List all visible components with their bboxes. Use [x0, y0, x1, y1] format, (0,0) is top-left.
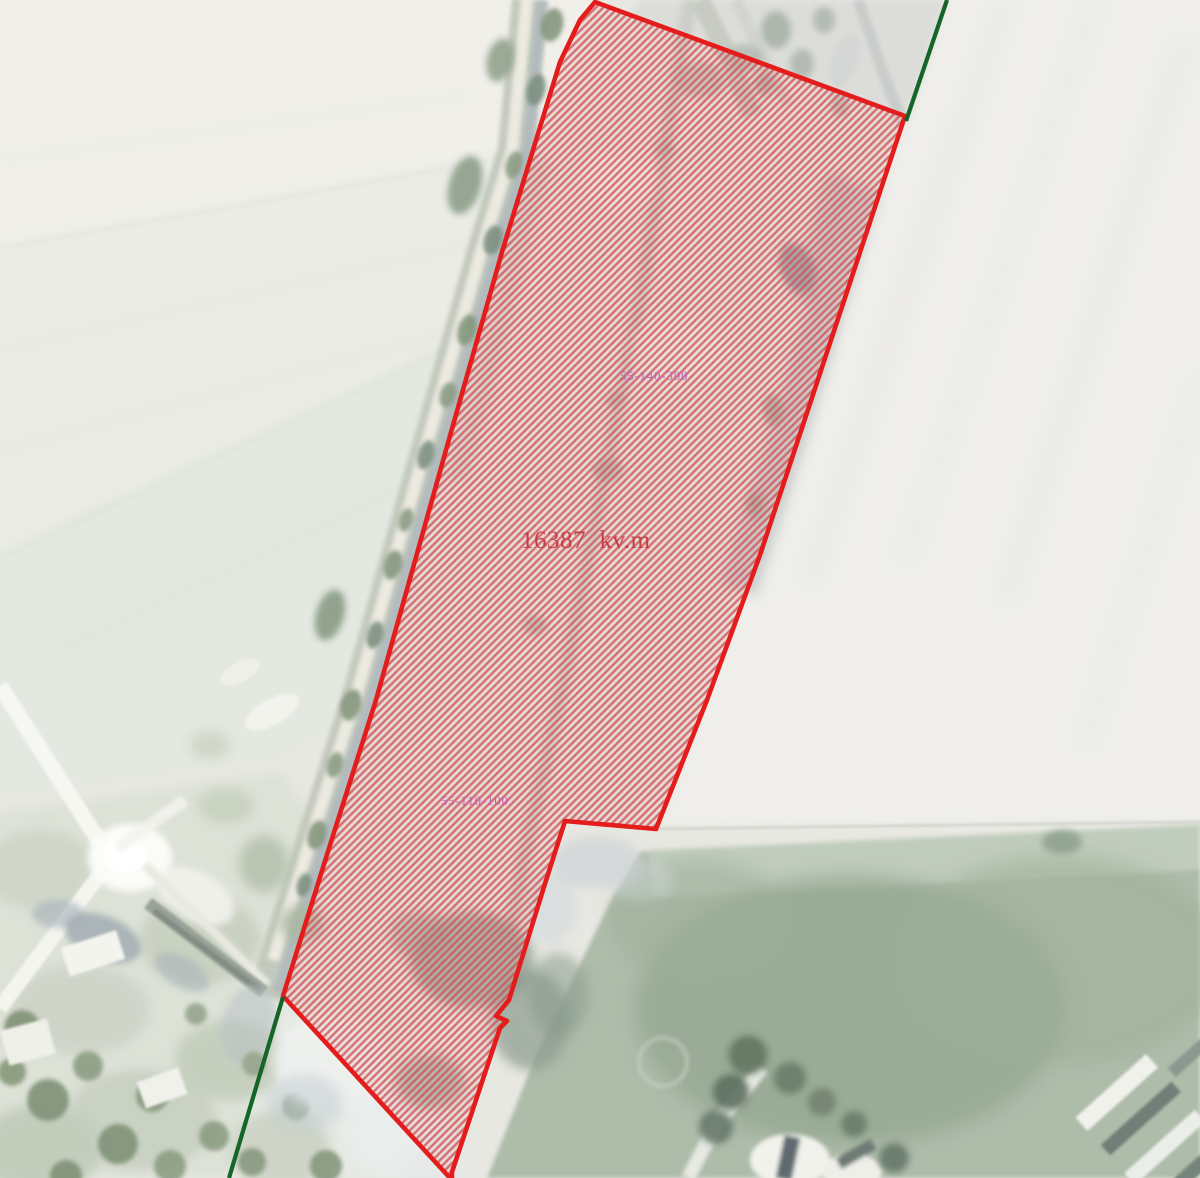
svg-text:16387 kv.m: 16387 kv.m: [521, 527, 651, 554]
svg-text:55-110-100: 55-110-100: [441, 794, 509, 808]
svg-text:55-140-300: 55-140-300: [620, 369, 688, 383]
